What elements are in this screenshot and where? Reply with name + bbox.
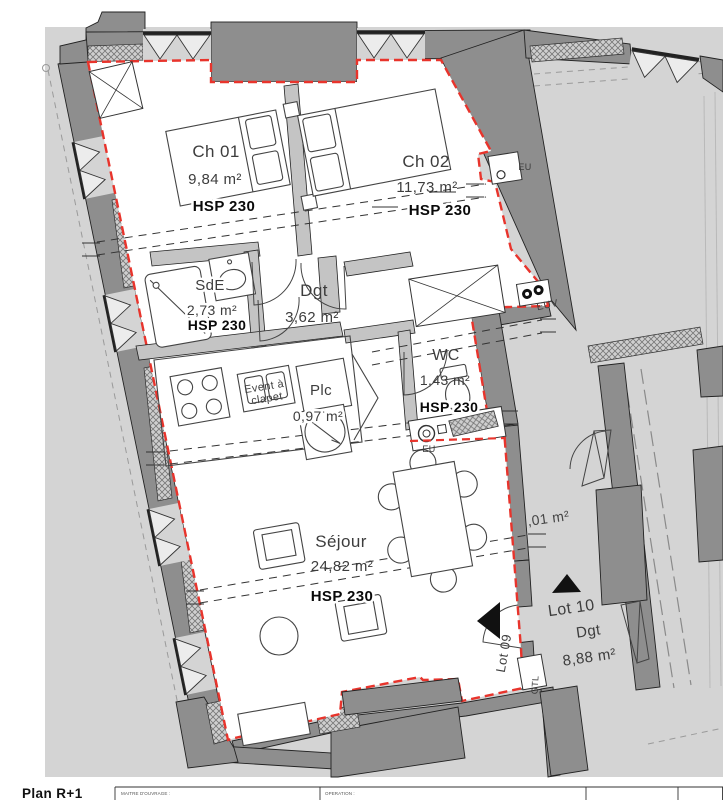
hsp-label-sde: HSP 230 bbox=[188, 317, 247, 333]
corridor-wall-thick bbox=[596, 485, 647, 605]
area-label-ch02: 11,73 m² bbox=[396, 179, 457, 196]
area-label-sde: 2,73 m² bbox=[187, 302, 237, 318]
floor-plan-drawing: Ch 01 9,84 m² HSP 230 Ch 02 11,73 m² HSP… bbox=[0, 0, 723, 800]
hsp-label-ch01: HSP 230 bbox=[193, 198, 256, 215]
hsp-label-sejour: HSP 230 bbox=[311, 588, 374, 605]
area-label-wc: 1,43 m² bbox=[420, 372, 470, 388]
room-label-sde: SdE bbox=[195, 277, 225, 294]
armchair-1 bbox=[253, 522, 305, 569]
area-label-sejour: 24,82 m² bbox=[311, 558, 373, 575]
right-edge-wall-a bbox=[697, 346, 723, 397]
room-label-plc: Plc bbox=[310, 382, 332, 399]
area-label-plc: 0,97 m² bbox=[293, 408, 343, 424]
gtl-label: GTL bbox=[530, 675, 541, 694]
hsp-label-ch02: HSP 230 bbox=[409, 202, 472, 219]
hsp-label-wc: HSP 230 bbox=[420, 399, 479, 415]
lot10-room: Dgt bbox=[575, 621, 602, 641]
area-label-dgt: 3,62 m² bbox=[285, 309, 339, 326]
eu-wc-label: EU bbox=[422, 444, 435, 454]
room-label-sejour: Séjour bbox=[315, 532, 367, 551]
floor-plan-page: Ch 01 9,84 m² HSP 230 Ch 02 11,73 m² HSP… bbox=[0, 0, 723, 800]
room-label-wc: WC bbox=[432, 347, 459, 364]
chimney-block bbox=[211, 22, 357, 82]
titleblock-col1-label: MAITRE D'OUVRAGE : bbox=[121, 791, 170, 796]
room-label-dgt: Dgt bbox=[300, 281, 328, 300]
plan-title: Plan R+1 bbox=[22, 786, 83, 800]
area-label-ch01: 9,84 m² bbox=[188, 171, 242, 188]
titleblock-col2-label: OPERATION : bbox=[325, 791, 355, 796]
eu-top-label: EU bbox=[518, 162, 531, 172]
stove bbox=[170, 368, 230, 426]
room-label-ch02: Ch 02 bbox=[402, 152, 449, 171]
room-label-ch01: Ch 01 bbox=[192, 142, 239, 161]
eu-top-niche bbox=[488, 152, 522, 184]
